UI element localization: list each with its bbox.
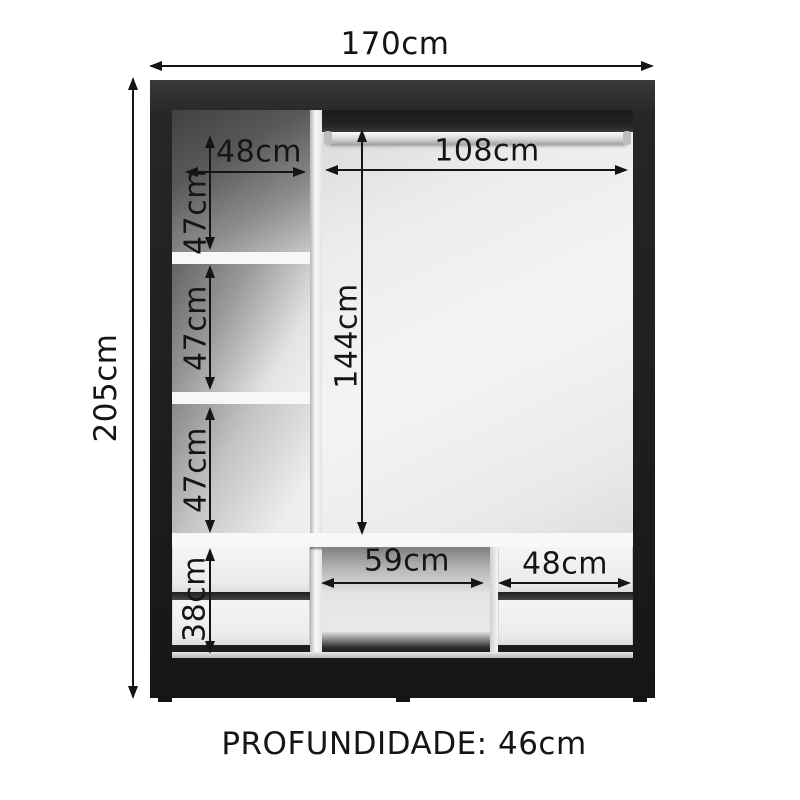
arrow-left-section-3 [209,409,211,531]
arrow-hanging-area-height [361,131,363,533]
hanging-compartment [322,110,633,533]
wardrobe-foot [396,698,410,702]
arrow-left-section-2 [209,267,211,388]
arrow-middle-opening-width [323,582,482,584]
dim-middle-opening-width: 59cm [364,544,450,579]
dim-total-width: 170cm [341,26,450,62]
dim-hanging-area-height: 144cm [330,283,365,388]
dim-right-drawers-width: 48cm [522,547,608,582]
arrow-total-width [151,65,652,67]
rod-end-cap-right [623,131,631,145]
arrow-left-section-1 [209,137,211,248]
dim-rod-width: 108cm [434,134,539,169]
base-rail-strip [172,652,633,658]
depth-note: PROFUNDIDADE: 46cm [221,726,586,762]
wardrobe-dimension-diagram: 170cm 205cm 48cm 47cm 47cm 47cm 38cm 108… [0,0,800,800]
dim-drawer-area-height: 38cm [178,556,213,642]
wardrobe-foot [158,698,172,702]
rod-end-cap-left [324,131,332,145]
wardrobe-foot [633,698,647,702]
drawer-gap [498,592,633,600]
dim-left-column-width: 48cm [216,135,302,170]
shelf-2 [172,392,310,404]
arrow-rod-width [327,169,626,171]
vertical-divider-panel [310,110,322,652]
arrow-total-height [132,79,134,697]
top-shadow-band [322,110,633,132]
floor-shadow [498,645,633,652]
small-divider-panel [490,547,498,652]
arrow-right-drawers-width [500,582,629,584]
floor-shadow [172,645,310,652]
arrow-drawer-area-height [209,550,211,652]
dim-total-height: 205cm [88,334,124,443]
drawer-face [498,600,633,645]
